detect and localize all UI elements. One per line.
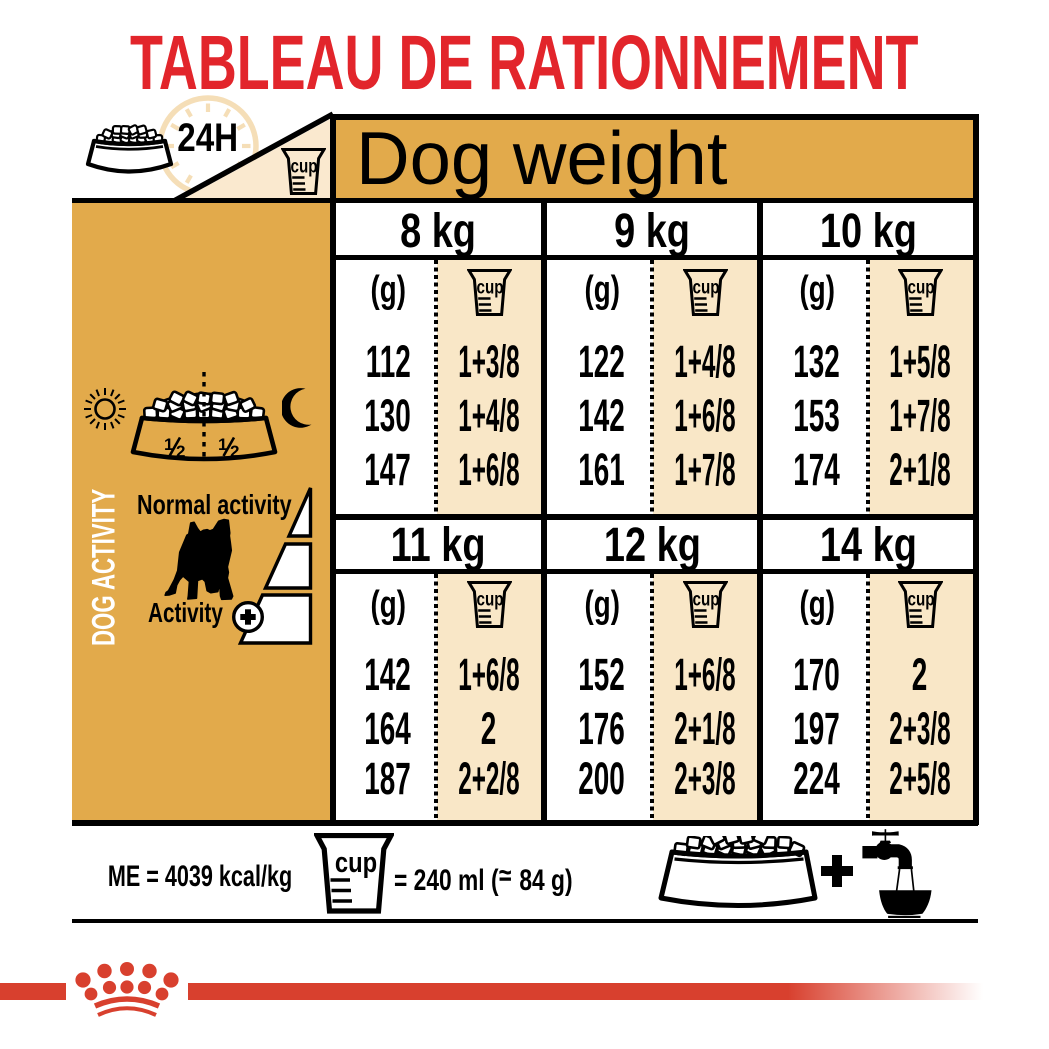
svg-text:2: 2	[176, 442, 185, 461]
svg-text:cup: cup	[335, 846, 377, 879]
svg-text:2: 2	[230, 442, 239, 461]
svg-text:DOG ACTIVITY: DOG ACTIVITY	[85, 488, 121, 646]
